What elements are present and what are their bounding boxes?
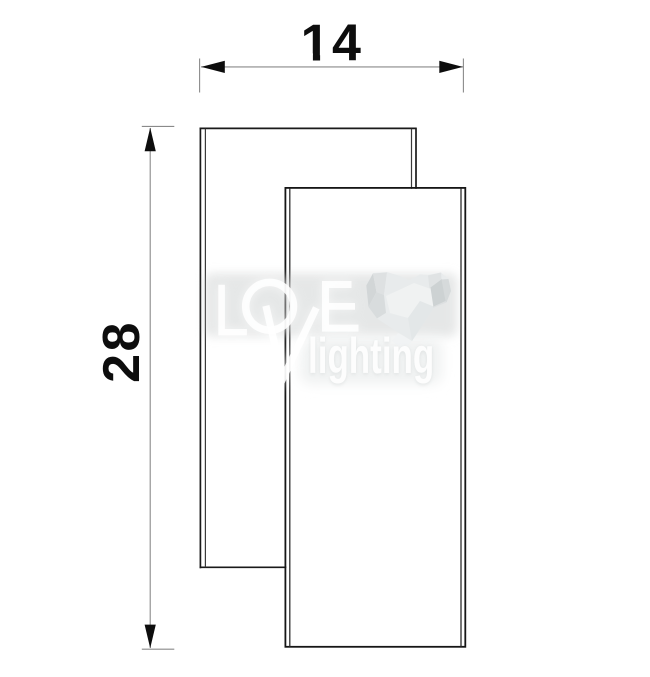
svg-text:lighting: lighting bbox=[308, 329, 434, 385]
svg-text:14: 14 bbox=[301, 15, 364, 73]
svg-text:28: 28 bbox=[93, 320, 151, 383]
